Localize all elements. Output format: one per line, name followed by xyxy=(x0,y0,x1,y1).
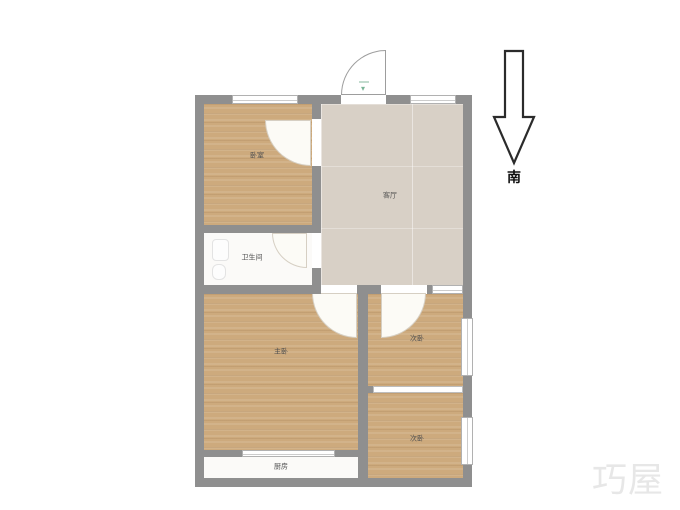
room-label-bedroom3: 次卧 xyxy=(410,436,424,443)
room-label-bathroom: 卫生间 xyxy=(242,255,263,262)
wall-segment xyxy=(312,104,321,119)
wall-segment xyxy=(195,285,315,294)
wall-segment xyxy=(335,450,358,457)
partition-wall xyxy=(373,386,463,393)
window-interior xyxy=(432,285,463,294)
bathroom-sink-icon xyxy=(212,239,229,261)
window-bedroom3 xyxy=(461,417,473,465)
wall-segment xyxy=(386,95,410,104)
south-label: 南 xyxy=(488,167,540,187)
wall-segment xyxy=(463,95,472,318)
window-bedroom1 xyxy=(232,95,298,104)
room-label-bedroom2: 次卧 xyxy=(410,336,424,343)
wall-segment xyxy=(298,95,341,104)
room-label-kitchen: 厨房 xyxy=(274,464,288,471)
window-kitchen xyxy=(242,450,335,457)
window-bedroom2 xyxy=(461,318,473,376)
wall-segment xyxy=(463,376,472,417)
wall-segment xyxy=(358,294,368,478)
entry-marker-icon: ▾ xyxy=(361,85,365,93)
wall-segment xyxy=(195,478,472,487)
wall-segment xyxy=(204,450,242,457)
wall-segment xyxy=(312,166,321,233)
floor-plan-canvas: 卧室 客厅 卫生间 主卧 次卧 次卧 厨房 ▾ 南 巧屋 xyxy=(0,0,680,510)
toilet-icon xyxy=(212,264,226,280)
room-label-master: 主卧 xyxy=(274,349,288,356)
watermark: 巧屋 xyxy=(592,452,664,503)
south-arrow-icon xyxy=(488,45,540,170)
wall-segment xyxy=(204,225,312,233)
entry-marker-bar xyxy=(359,81,369,83)
wall-segment xyxy=(357,285,381,294)
room-label-living: 客厅 xyxy=(383,193,397,200)
window-living xyxy=(410,95,456,104)
room-label-bedroom1: 卧室 xyxy=(250,153,264,160)
